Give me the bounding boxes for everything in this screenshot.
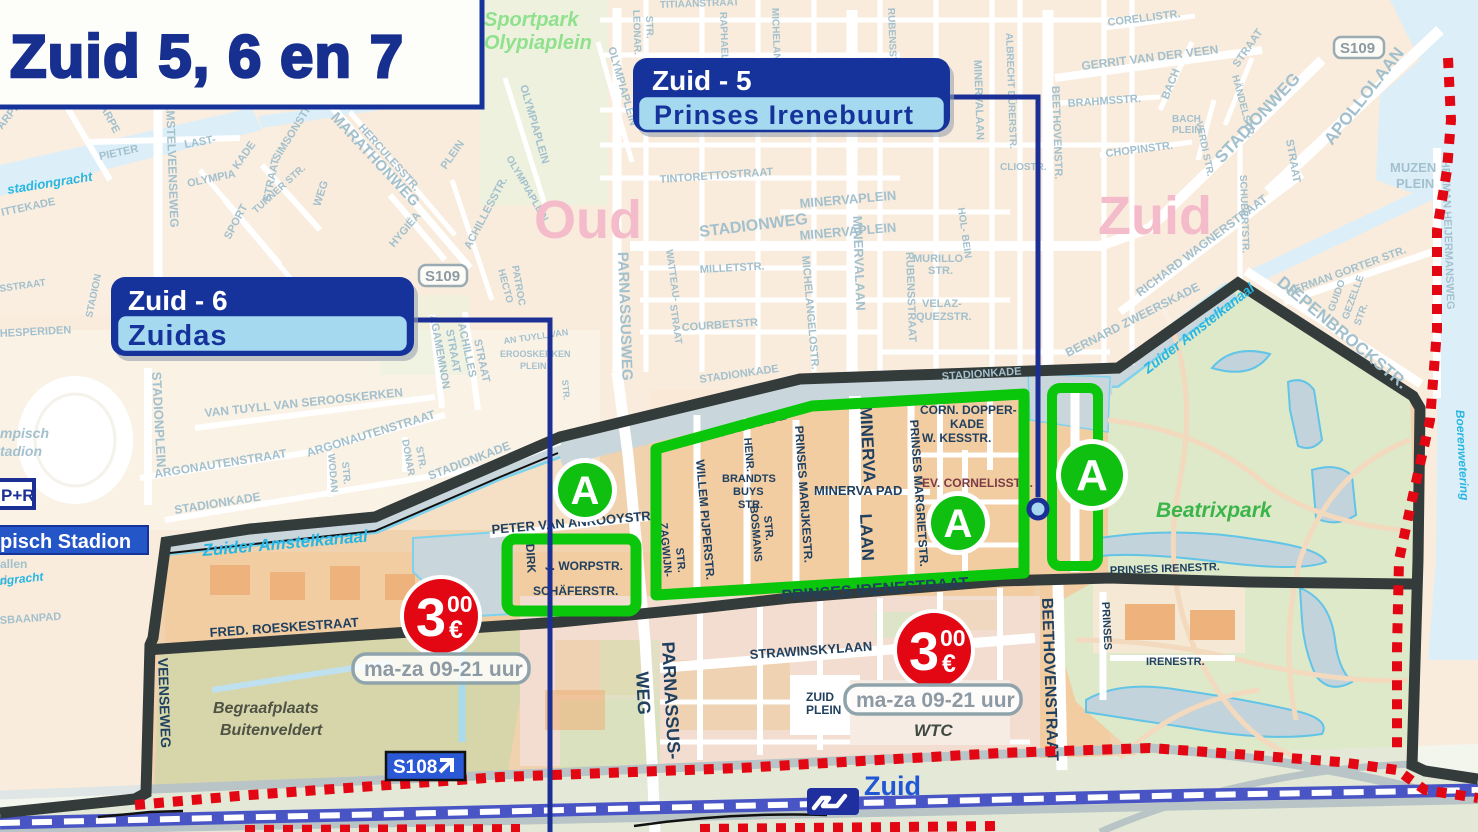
svg-text:tadion: tadion (0, 443, 42, 459)
svg-text:EV. CORNELISSTR.: EV. CORNELISSTR. (922, 476, 1033, 490)
svg-text:Zuid - 6: Zuid - 6 (128, 285, 228, 316)
svg-text:€: € (449, 616, 463, 644)
svg-text:WEG: WEG (632, 671, 654, 715)
svg-text:allen: allen (0, 557, 27, 571)
svg-text:A: A (571, 469, 600, 513)
svg-text:A: A (1076, 451, 1108, 500)
svg-text:ma-za 09-21 uur: ma-za 09-21 uur (856, 689, 1015, 712)
svg-text:MINERVA: MINERVA (856, 405, 879, 483)
svg-text:CORN. DOPPER-: CORN. DOPPER- (920, 403, 1017, 417)
svg-text:STR.: STR. (928, 265, 953, 277)
svg-text:Zuid 5, 6 en 7: Zuid 5, 6 en 7 (10, 23, 404, 90)
svg-text:LEONAR.: LEONAR. (630, 10, 643, 56)
svg-text:MUZEN: MUZEN (1390, 160, 1436, 175)
svg-text:Buitenveldert: Buitenveldert (220, 722, 323, 739)
svg-text:Prinses Irenebuurt: Prinses Irenebuurt (654, 100, 914, 130)
svg-text:STR.: STR. (643, 16, 655, 39)
svg-text:PLEIN: PLEIN (520, 361, 547, 371)
svg-text:Zuid - 5: Zuid - 5 (652, 65, 752, 96)
svg-text:Zuid: Zuid (1098, 186, 1212, 246)
svg-text:VEENSEWEG: VEENSEWEG (155, 658, 174, 749)
svg-text:STR.: STR. (673, 547, 687, 573)
svg-text:Olypiaplein: Olypiaplein (484, 32, 592, 54)
svg-text:MURILLO: MURILLO (913, 253, 964, 265)
svg-text:J. WORPSTR.: J. WORPSTR. (545, 559, 623, 573)
svg-text:PLEIN: PLEIN (806, 703, 841, 717)
svg-text:00: 00 (940, 625, 966, 651)
svg-text:pisch Stadion: pisch Stadion (0, 531, 131, 553)
svg-text:STR.: STR. (761, 515, 775, 541)
svg-text:IRENESTR.: IRENESTR. (1146, 656, 1205, 668)
svg-text:3: 3 (416, 588, 446, 648)
svg-text:mpisch: mpisch (0, 425, 49, 441)
svg-text:Begraafplaats: Begraafplaats (213, 700, 319, 717)
svg-text:Beatrixpark: Beatrixpark (1156, 499, 1273, 522)
svg-text:3: 3 (909, 622, 939, 682)
svg-text:SCHÄFERSTR.: SCHÄFERSTR. (533, 583, 618, 598)
svg-text:BUYS: BUYS (733, 486, 764, 498)
svg-text:Oud: Oud (534, 190, 642, 250)
svg-text:BRANDTS: BRANDTS (722, 473, 776, 485)
svg-text:Zuid: Zuid (864, 771, 921, 801)
svg-text:VELAZ-: VELAZ- (922, 298, 962, 310)
svg-text:S109: S109 (1340, 40, 1375, 57)
svg-text:€: € (942, 650, 956, 678)
svg-text:ZUID: ZUID (806, 690, 834, 704)
svg-text:PRINSES: PRINSES (1099, 602, 1114, 651)
svg-text:P+R: P+R (1, 486, 35, 505)
svg-text:EROOSKERKEN: EROOSKERKEN (500, 349, 571, 359)
svg-text:S109: S109 (425, 268, 460, 285)
svg-text:DIRK: DIRK (523, 543, 539, 573)
svg-text:00: 00 (447, 591, 473, 617)
svg-text:W. KESSTR.: W. KESSTR. (922, 431, 991, 445)
svg-text:Sportpark: Sportpark (484, 9, 579, 31)
svg-text:Zuidas: Zuidas (128, 320, 227, 352)
svg-text:S108: S108 (393, 757, 437, 778)
svg-text:ma-za 09-21 uur: ma-za 09-21 uur (364, 658, 523, 681)
svg-text:STR.: STR. (560, 379, 572, 400)
svg-text:WTC: WTC (914, 721, 953, 740)
svg-text:QUEZSTR.: QUEZSTR. (916, 311, 972, 323)
svg-text:STR.: STR. (738, 499, 763, 511)
svg-text:PLEIN: PLEIN (1396, 176, 1434, 191)
svg-text:LAAN: LAAN (856, 513, 877, 561)
svg-text:MINERVA PAD: MINERVA PAD (814, 483, 902, 498)
svg-text:A: A (944, 502, 973, 546)
svg-text:STR.: STR. (339, 461, 352, 485)
svg-text:KADE: KADE (950, 417, 984, 431)
